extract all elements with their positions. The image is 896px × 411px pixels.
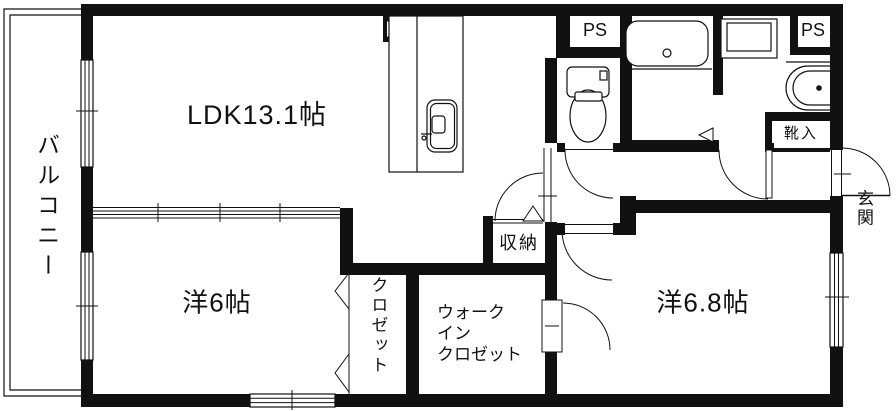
wall-bottom-left [81,394,250,407]
window-bedroom-east [825,253,849,347]
wall-closet-top [340,263,557,275]
wall-toilet-west [545,58,557,143]
room-label-storage: 収納 [499,234,539,254]
wall-partition-post [340,208,353,268]
sliding-partition [93,203,340,222]
door-bedroom-east [562,225,613,281]
bathtub-icon [624,21,712,69]
toilet-icon [567,67,609,142]
wall-top [81,4,843,16]
label-entrance: 玄関 [853,190,882,227]
wall-hall-south-e [632,200,832,213]
door-toilet [565,150,613,199]
wall-wic-east-lower [545,352,557,394]
wall-left-c [81,360,93,407]
window-ldk-balcony [76,60,98,167]
wall-shoe-bottom [772,148,830,152]
wall-hall-south-w1 [553,223,565,235]
wall-ps-right-bottom [790,47,830,55]
wall-shoe-top [765,112,830,121]
label-shoe-cabinet: 靴入 [784,126,818,143]
wall-right-a [830,4,843,150]
washer-pan-icon [721,19,777,58]
room-label-balcony: バルコニー [33,133,58,283]
room-label-bedroom-east: 洋6.8帖 [656,289,749,318]
wall-left-a [81,4,93,60]
room-label-closet: クロゼット [368,276,387,376]
door-walk-in-closet [542,300,610,352]
window-bedroom-west-south [250,390,335,410]
door-bath-fold [699,128,713,142]
wall-bath-south [620,140,719,152]
wall-toilet-south-w [557,143,565,152]
door-ldk-hall [495,148,557,222]
room-label-walk-in-closet: ウォーク イン クロゼット [437,302,522,365]
washbasin-icon [786,62,830,114]
wall-bottom-right [335,394,843,407]
floor-plan: LDK13.1帖 洋6帖 洋6.8帖 バルコニー クロゼット ウォーク イン ク… [0,0,896,411]
window-bedroom-west-balcony [76,252,98,360]
wall-toilet-south-e [613,143,620,152]
wall-right-c [830,347,843,407]
label-pipe-space-right: PS [801,21,825,41]
door-storage-bifold [493,206,543,223]
door-washroom [719,150,772,199]
wall-left-b [81,167,93,252]
wall-storage-west [483,216,493,263]
kitchen-counter-icon [389,16,463,172]
wall-closet-east [406,263,419,394]
label-pipe-space-left: PS [583,21,607,41]
door-closet-bifold [335,273,349,394]
room-label-bedroom-west: 洋6帖 [182,289,251,318]
room-label-ldk: LDK13.1帖 [187,101,327,131]
